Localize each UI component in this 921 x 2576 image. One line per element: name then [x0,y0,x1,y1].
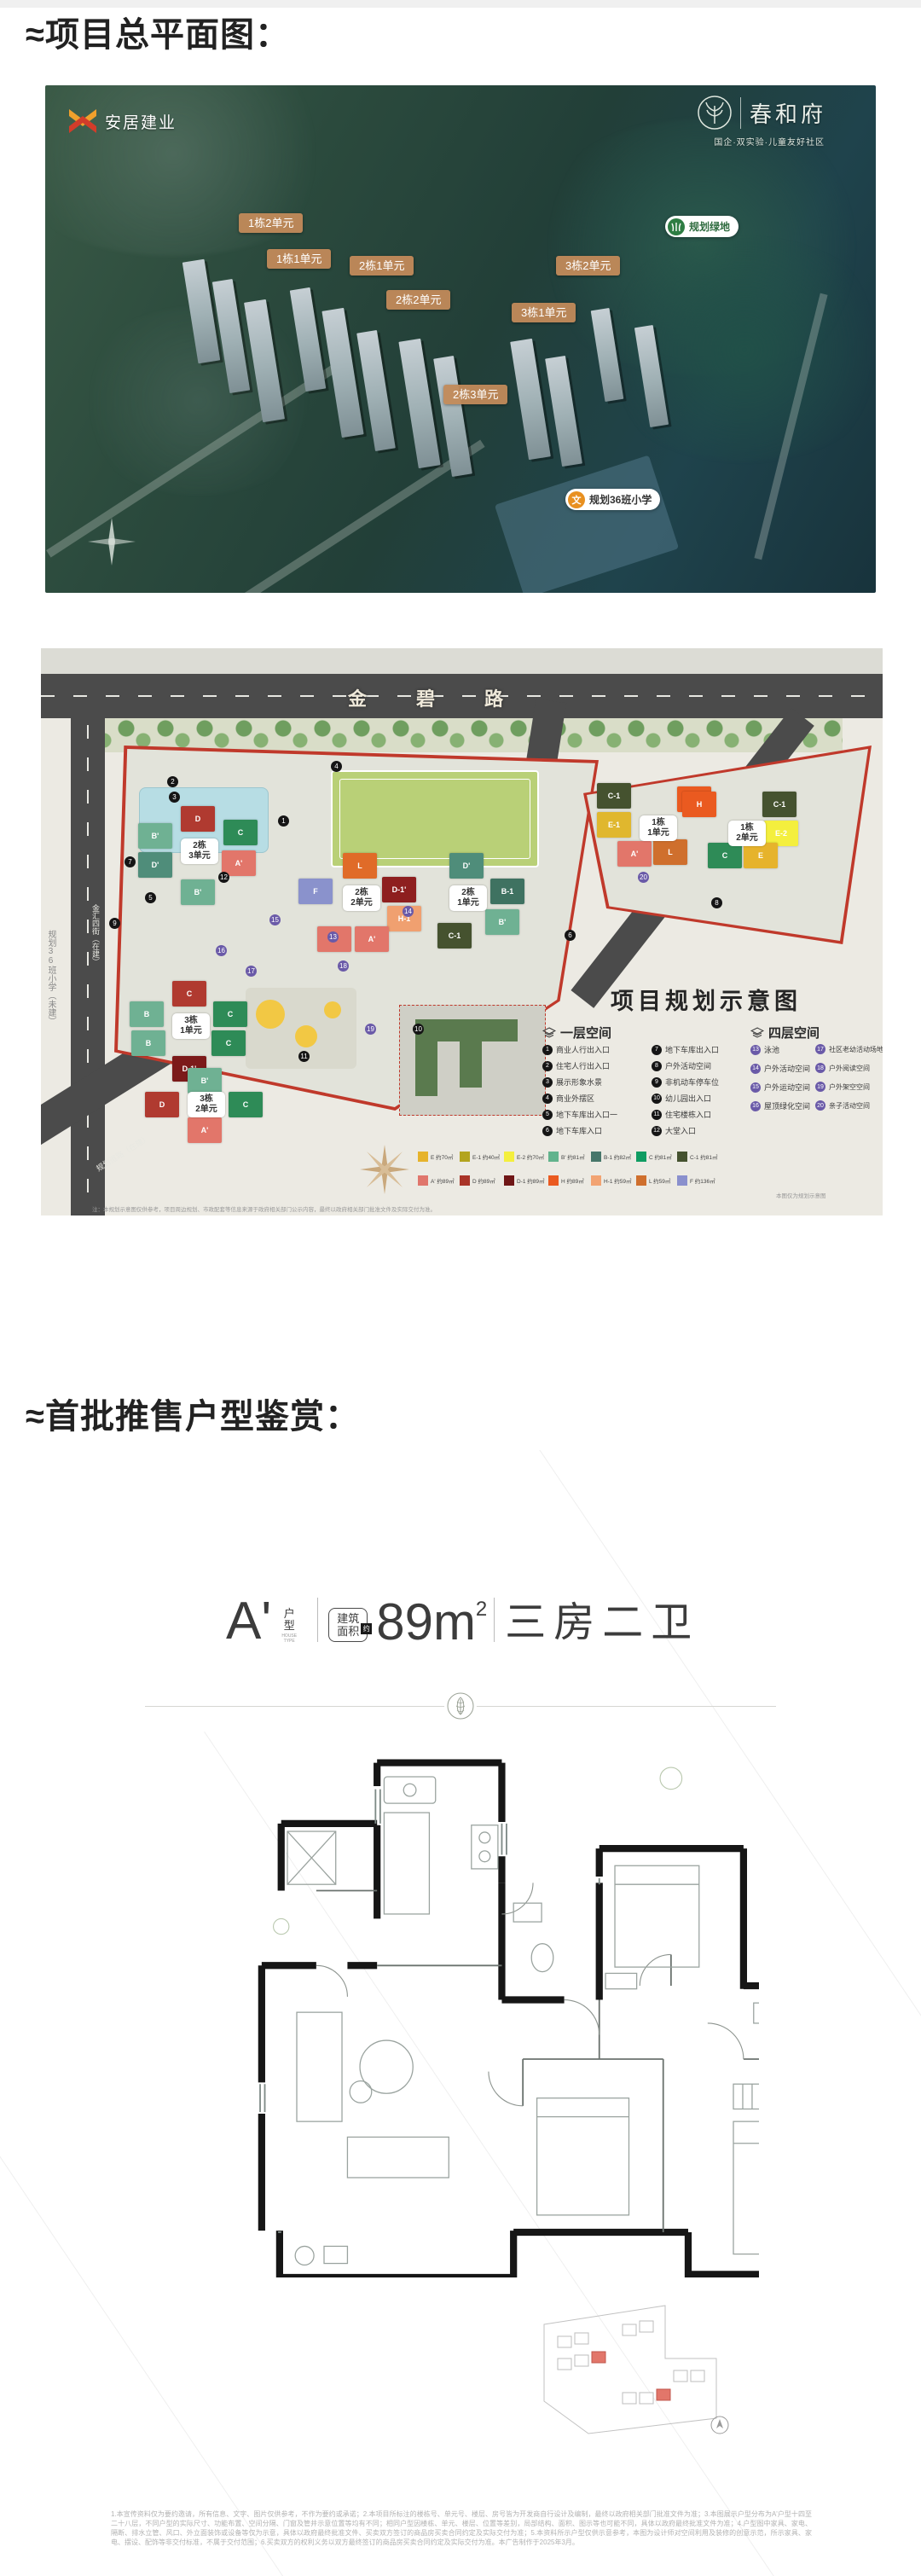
building-label: 3栋1单元 [512,303,576,322]
legend-item: 19户外架空空间 [815,1082,870,1092]
swatch: F 约136㎡ [677,1175,715,1186]
school-building [415,1019,518,1041]
legend-item: 15户外运动空间 [750,1082,810,1093]
project-logo: 春和府 [696,94,826,131]
building-label: 2栋2单元 [386,290,450,310]
unit-block: E-1 [597,812,631,838]
unit-block: A' [617,841,652,867]
swatch: C 约81㎡ [636,1152,672,1162]
unit-block: B [130,1001,164,1027]
divider [494,1598,495,1642]
layers-icon [542,1027,556,1039]
compass-icon [86,516,137,567]
developer-logo-icon [66,104,100,138]
legend-item: 11住宅楼栋入口 [652,1109,711,1120]
forest-blob [591,239,876,461]
cluster-2-1: D' B-1 C-1 B' 2栋 1单元 [403,853,531,954]
unit-block: D' [138,852,172,878]
marker: 1 [278,815,289,827]
legend-item: 9非机动车停车位 [652,1076,719,1088]
swatch: E-1 约40㎡ [460,1152,500,1162]
marker: 17 [246,966,257,977]
cluster-label: 1栋 2单元 [728,821,766,846]
cluster-3-1: C B C B C D-1' 3栋 1单元 [126,981,254,1082]
developer-name: 安居建业 [105,110,177,133]
unit-block: B' [188,1068,222,1094]
unit-block: C [172,981,206,1007]
swatch: H-1 约59㎡ [591,1175,632,1186]
marker: 16 [216,945,227,956]
cluster-label: 3栋 1单元 [172,1013,210,1039]
unit-type-letter: A' [226,1596,271,1647]
playground-mound [295,1025,317,1047]
legend-item: 13泳池 [750,1044,779,1055]
unit-block: B-1 [490,879,524,904]
swatch: C-1 约81㎡ [677,1152,718,1162]
unit-block: C [223,820,258,845]
legend-item: 20亲子活动空间 [815,1100,870,1111]
unit-block: E [744,843,778,868]
section2-heading: ≈首批推售户型鉴赏： [26,1389,360,1438]
unit-block: A' [355,926,389,952]
legend-item: 14户外活动空间 [750,1063,810,1074]
swatch: D-1 约89㎡ [504,1175,545,1186]
unit-block: C [213,1001,247,1027]
legend-item: 16屋顶绿化空间 [750,1100,810,1111]
cluster-1-2: H C-1 E-2 C E 1栋 2单元 [682,788,810,889]
street-trees [75,718,843,752]
swatch: A' 约89㎡ [418,1175,455,1186]
marker: 2 [167,776,178,787]
green-space-badge: 规划绿地 [665,216,739,237]
swatch: B' 约81㎡ [548,1152,585,1162]
tower [545,356,582,467]
swatch: B-1 约82㎡ [591,1152,631,1162]
legend-item: 1商业人行出入口 [542,1044,610,1055]
road-top-label: 金碧路 [348,684,553,711]
marker: 20 [638,872,649,883]
layers-icon [750,1027,764,1039]
cluster-label: 3栋 2单元 [188,1092,225,1117]
playground-mound [324,1001,341,1018]
school-icon: 文 [568,491,585,508]
legend-item: 18户外阅读空间 [815,1063,870,1073]
unit-block: C [229,1092,263,1117]
playground-mound [256,1000,285,1029]
unit-block: L [343,853,377,879]
school-building [460,1041,482,1088]
unit-block: B [131,1030,165,1056]
approx-badge: 约 [361,1623,372,1634]
leaf-emblem-icon [444,1690,477,1722]
legend-item: 6地下车库入口 [542,1125,602,1136]
unit-block: B' [181,879,215,905]
swatch: E-2 约70㎡ [504,1152,544,1162]
legend-item: 7地下车库出入口 [652,1044,719,1055]
marker: 12 [218,872,229,883]
sidewalk [41,648,883,674]
unit-area: 89m2 [376,1585,487,1647]
building-label: 2栋3单元 [443,385,507,404]
plan-title: 项目规划示意图 [611,983,802,1016]
swatch: D 约89㎡ [460,1175,495,1186]
legend-item: 3展示形象水景 [542,1076,602,1088]
road-left-centerline [87,725,89,1211]
building-label: 2栋1单元 [350,256,414,276]
school-site [495,455,679,593]
project-name: 春和府 [740,97,826,129]
floorplan-card: A' 户型 HOUSE TYPE 建筑 面积 约 89m2 三房二卫 [0,1450,921,2576]
building-label: 3栋2单元 [556,256,620,276]
swatch: L 约59㎡ [636,1175,670,1186]
legend-item: 4商业外摆区 [542,1093,594,1104]
plan-note: 本图仅为规划示意图 [776,1191,826,1199]
north-arrow-icon [716,2419,723,2428]
marker: 13 [327,931,339,943]
tower [510,339,551,460]
unit-block: C-1 [762,792,796,817]
swatch: E 约70㎡ [418,1152,453,1162]
marker: 11 [298,1051,310,1062]
building-label: 1栋1单元 [267,249,331,269]
school-label: 规划36班小学 [589,492,652,507]
cluster-label: 2栋 2单元 [343,885,380,911]
unit-block: F [298,879,333,904]
marker: 7 [125,856,136,867]
school-badge: 文 规划36班小学 [565,489,660,510]
marker: 5 [145,892,156,903]
lawn-track [339,779,530,859]
green-space-label: 规划绿地 [689,219,730,234]
floorplan-header: A' 户型 HOUSE TYPE 建筑 面积 约 89m2 三房二卫 [226,1585,699,1647]
cluster-2-3: D B' C D' A' B' 2栋 3单元 [135,806,263,907]
cluster-label: 2栋 1单元 [449,885,487,911]
tree-emblem-icon [696,94,733,131]
unit-block: C [211,1030,246,1056]
floorplan-drawing [162,1732,759,2277]
left-parcel-note: 规划36班小学（未建） [44,930,57,1025]
legend-item: 17社区老幼活动场地 [815,1044,883,1054]
marker: 19 [365,1024,376,1035]
section1-heading: ≈项目总平面图： [26,7,290,56]
legend-item: 12大堂入口 [652,1125,696,1136]
marker: 6 [565,930,576,941]
unit-rooms: 三房二卫 [505,1601,699,1645]
unit-block: A' [188,1117,222,1143]
legend-item: 5地下车库出入口一 [542,1109,617,1120]
school-building [415,1041,437,1096]
grass-icon [668,218,685,235]
unit-block: C-1 [597,783,631,809]
plan-disclaimer: 注：本规划示意图仅供参考，项目周边规划、市政配套等信息来源于政府相关部门公示内容… [92,1204,834,1213]
marker: 14 [403,906,414,917]
unit-block: D [145,1092,179,1117]
developer-logo: 安居建业 [66,104,177,138]
unit-block: D [181,806,215,832]
unit-block: B' [138,823,172,849]
swatch: H 约89㎡ [548,1175,584,1186]
cluster-label: 1栋 1单元 [640,815,677,841]
marker: 10 [413,1024,424,1035]
building-label: 1栋2单元 [239,213,303,233]
legend2-header: 四层空间 [750,1024,820,1041]
marker: 18 [338,960,349,972]
unit-block: D' [449,853,484,879]
area-label-box: 建筑 面积 约 [328,1608,368,1642]
compass-rose-icon [360,1145,409,1194]
unit-block: B' [485,909,519,935]
legend-item: 10幼儿园出入口 [652,1093,711,1104]
floorplan-disclaimer: 1.本宣传资料仅为要约邀请，所有信息、文字、图片仅供参考，不作为要约或承诺；2.… [111,2509,812,2547]
cluster-label: 2栋 3单元 [181,838,218,864]
unit-block: C-1 [437,923,472,949]
divider [317,1598,318,1642]
legend-item: 2住宅人行出入口 [542,1060,610,1071]
cluster-3-2: B' D C A' 3栋 2单元 [142,1068,269,1169]
unit-block: C [708,843,742,868]
marker: 9 [109,918,120,929]
project-tagline: 国企·双实验·儿童友好社区 [714,135,825,148]
marker: 4 [331,761,342,772]
marker: 3 [169,792,180,803]
site-plan-image: 金碧路 规划36班小学（未建） 金汇四街（在建） 规划道路（在建） [41,648,883,1215]
unit-block: H [682,792,716,817]
school-parcel [399,1005,546,1116]
marker: 8 [711,897,722,908]
legend-item: 8户外活动空间 [652,1060,711,1071]
marker: 15 [269,914,281,925]
keyplan-inset [537,2299,733,2440]
aerial-render-image: 安居建业 春和府 国企·双实验·儿童友好社区 1栋2单元 1栋1单元 2栋1单元… [45,85,876,593]
legend1-header: 一层空间 [542,1024,611,1041]
left-road-label: 金汇四街（在建） [90,904,101,966]
unit-type-labels: 户型 HOUSE TYPE [276,1608,302,1644]
